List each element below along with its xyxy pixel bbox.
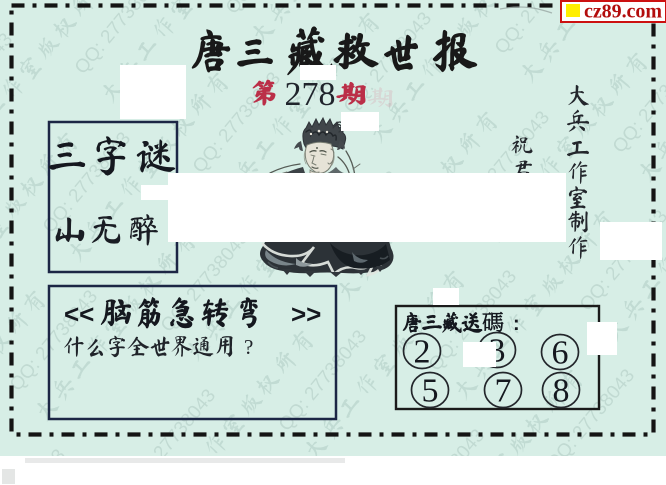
svg-text:>>: >> <box>291 299 321 329</box>
svg-text:278: 278 <box>285 76 336 113</box>
svg-text:<<: << <box>64 299 94 329</box>
svg-text:7: 7 <box>495 373 512 410</box>
svg-text:8: 8 <box>553 373 570 410</box>
svg-text:6: 6 <box>552 335 569 372</box>
svg-text:?: ? <box>244 335 253 359</box>
svg-text::: : <box>513 313 520 335</box>
svg-text:5: 5 <box>422 373 439 410</box>
svg-text:cz89.com: cz89.com <box>584 1 662 23</box>
svg-text:2: 2 <box>414 334 431 371</box>
